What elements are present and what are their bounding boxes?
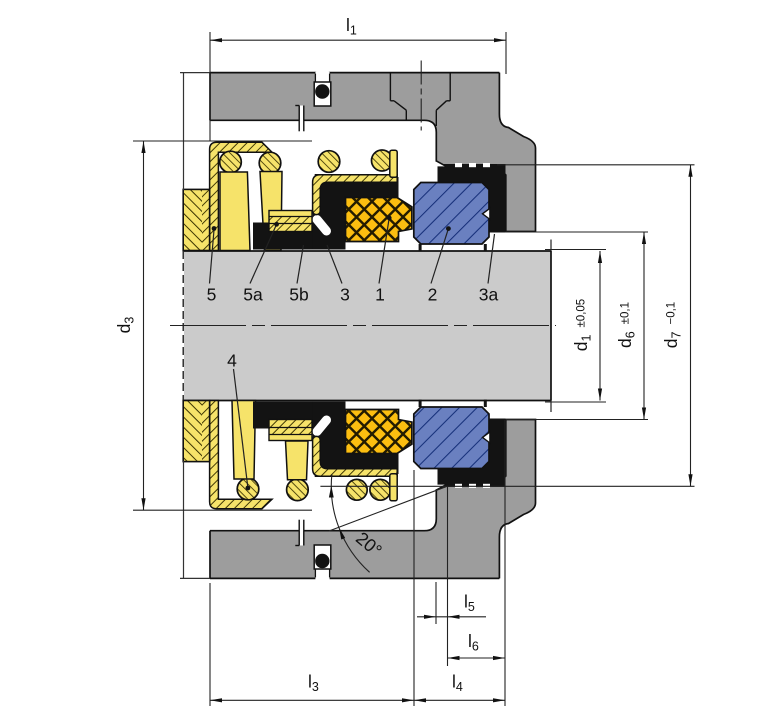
- svg-text:5: 5: [207, 285, 217, 305]
- svg-text:3a: 3a: [479, 285, 499, 305]
- svg-text:5b: 5b: [289, 285, 308, 305]
- svg-text:1: 1: [375, 285, 385, 305]
- svg-text:3: 3: [340, 285, 350, 305]
- svg-text:4: 4: [227, 351, 237, 371]
- svg-text:2: 2: [428, 285, 438, 305]
- svg-text:5a: 5a: [243, 285, 263, 305]
